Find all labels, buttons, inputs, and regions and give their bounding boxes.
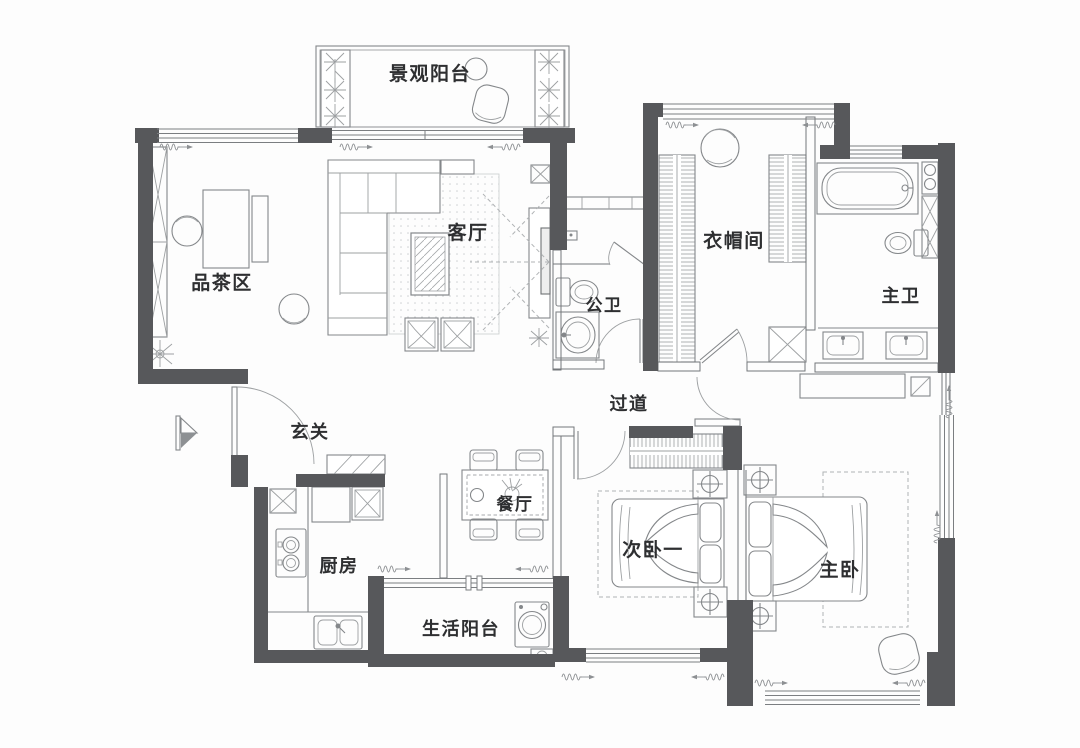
dining-chair-4 bbox=[516, 519, 543, 540]
low-cabinet bbox=[800, 374, 905, 398]
room-label-tea-area: 品茶区 bbox=[191, 271, 253, 294]
room-cloakroom: 衣帽间 bbox=[659, 129, 806, 363]
room-living-room: 客厅 bbox=[328, 160, 577, 351]
ottoman-2 bbox=[441, 318, 474, 351]
wardrobe-right bbox=[769, 155, 806, 262]
floor-plan-drawing: 景观阳台 品茶区 客厅 bbox=[0, 0, 1080, 748]
room-label-dining: 餐厅 bbox=[497, 494, 534, 514]
tea-chair-1 bbox=[172, 216, 202, 246]
room-label-viewing-balcony: 景观阳台 bbox=[389, 62, 471, 85]
room-label-master-bedroom: 主卧 bbox=[819, 559, 860, 581]
room-label-kitchen: 厨房 bbox=[320, 555, 359, 576]
room-label-foyer: 玄关 bbox=[291, 421, 330, 442]
shower-door bbox=[609, 242, 645, 265]
nightstand-bed2-top bbox=[693, 470, 727, 498]
plant-small bbox=[529, 328, 549, 347]
cloakroom-door bbox=[700, 329, 747, 363]
side-table bbox=[252, 196, 268, 262]
storage-box bbox=[769, 327, 806, 362]
room-tea-area: 品茶区 bbox=[146, 147, 309, 367]
coffee-table bbox=[411, 233, 449, 295]
shoe-cabinet bbox=[327, 455, 385, 474]
walls bbox=[135, 103, 955, 706]
washing-machine bbox=[515, 602, 549, 647]
balcony-chair bbox=[470, 83, 511, 126]
dining-chair-2 bbox=[516, 450, 543, 471]
dining-chair-3 bbox=[470, 519, 497, 540]
kitchen-cabinet bbox=[312, 487, 350, 522]
floor-plan: 景观阳台 品茶区 客厅 bbox=[0, 0, 1080, 748]
room-utility-balcony: 生活阳台 bbox=[422, 602, 553, 663]
room-label-living-room: 客厅 bbox=[447, 221, 488, 244]
nightstand-master-top bbox=[744, 465, 776, 495]
window-seat-box bbox=[911, 377, 930, 396]
sofa-side-table bbox=[441, 160, 474, 174]
balcony-railing-inner bbox=[320, 50, 565, 127]
bedroom2-door bbox=[574, 431, 625, 479]
room-second-bedroom: 次卧一 bbox=[574, 431, 727, 617]
bath-shelf-unit bbox=[922, 162, 938, 258]
wardrobe-left bbox=[659, 155, 695, 362]
bed-master bbox=[746, 497, 867, 601]
wall-switch bbox=[566, 231, 577, 240]
room-dining: 餐厅 bbox=[462, 450, 548, 540]
fridge bbox=[352, 487, 383, 520]
entry-arrow bbox=[176, 416, 197, 450]
room-label-hallway: 过道 bbox=[610, 393, 649, 414]
wardrobe-bedroom2 bbox=[630, 434, 723, 468]
room-label-second-bedroom: 次卧一 bbox=[622, 538, 684, 561]
bath-shelf bbox=[566, 197, 645, 209]
master-chair bbox=[876, 631, 922, 677]
room-foyer: 玄关 bbox=[176, 387, 385, 474]
stove bbox=[276, 529, 306, 577]
kitchen-sink bbox=[314, 616, 362, 649]
double-vanity bbox=[818, 328, 938, 359]
room-master-bath: 主卫 bbox=[817, 162, 938, 359]
vanity-sink-guest bbox=[556, 312, 599, 358]
ottoman-1 bbox=[405, 318, 438, 351]
room-kitchen: 厨房 bbox=[268, 487, 383, 649]
room-label-cloakroom: 衣帽间 bbox=[703, 229, 765, 252]
guest-bath-door bbox=[596, 319, 643, 363]
tea-table bbox=[203, 190, 249, 268]
room-label-master-bath: 主卫 bbox=[882, 285, 921, 306]
bathtub bbox=[817, 163, 918, 214]
cloakroom-chair bbox=[701, 129, 739, 167]
room-label-guest-bath: 公卫 bbox=[586, 296, 623, 315]
tea-chair-2 bbox=[279, 294, 309, 324]
dining-chair-1 bbox=[470, 450, 497, 471]
room-label-utility-balcony: 生活阳台 bbox=[422, 618, 500, 639]
master-suite-door bbox=[695, 377, 740, 426]
wall-unit-box bbox=[531, 165, 550, 183]
room-viewing-balcony: 景观阳台 bbox=[316, 46, 569, 128]
balcony-railing bbox=[316, 46, 569, 127]
nightstand-bed2-bottom bbox=[694, 587, 727, 617]
corner-shelf bbox=[270, 489, 296, 513]
